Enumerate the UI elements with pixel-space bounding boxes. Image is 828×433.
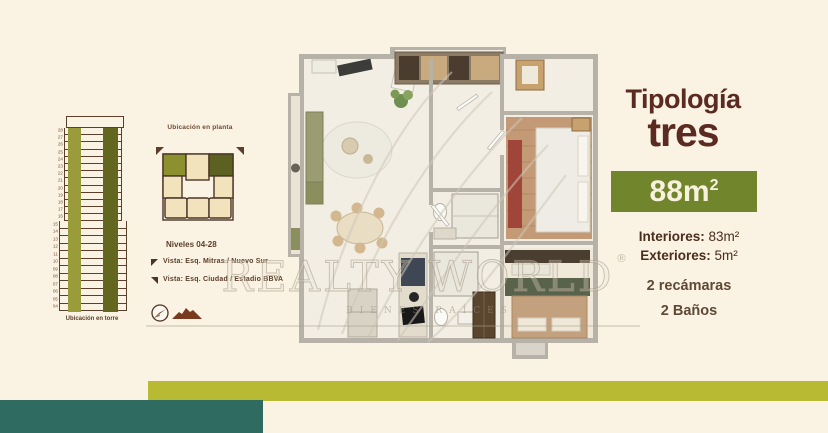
corner-top-left-icon xyxy=(151,259,158,266)
tower-floor-number: 26 xyxy=(54,143,63,148)
tower-diagram: 2827262524232221201918171615141312111009… xyxy=(52,116,132,311)
tower-floor-number: 27 xyxy=(54,136,63,141)
tower-floor-number: 04 xyxy=(49,305,58,310)
tower-floor-number: 09 xyxy=(49,267,58,272)
flyer-page: 2827262524232221201918171615141312111009… xyxy=(0,0,828,433)
tower-roof xyxy=(66,116,124,128)
tower-floor-number: 13 xyxy=(49,237,58,242)
green-accent-wall xyxy=(505,278,590,296)
tower-floor-number: 06 xyxy=(49,290,58,295)
plan-locator-diagram xyxy=(156,146,244,228)
exterior-area-label: Exteriores: xyxy=(640,248,711,263)
bed-2 xyxy=(512,296,587,338)
interior-area-row: Interiores: 83m² xyxy=(597,229,781,244)
exterior-area-value: 5m² xyxy=(715,248,738,263)
accent-bar-teal xyxy=(0,400,263,433)
bedroom-1 xyxy=(506,117,592,239)
view-1-label: Vista: Esq. Mitras / Nuevo Sur xyxy=(163,258,268,265)
tower-floor-number: 17 xyxy=(54,208,63,213)
tower-floor-number: 18 xyxy=(54,201,63,206)
tower-floor-number: 14 xyxy=(49,230,58,235)
locator-unit-highlight-left xyxy=(163,154,186,176)
tower-floors: 2827262524232221201918171615141312111009… xyxy=(52,128,132,311)
tower-floor-number: 22 xyxy=(54,172,63,177)
tower-floor-number: 07 xyxy=(49,282,58,287)
view-corner-marker-right-icon xyxy=(236,147,244,155)
accent-bar-lime xyxy=(148,381,828,401)
exterior-area-row: Exteriores: 5m² xyxy=(597,248,781,263)
kitchen-cabinet xyxy=(401,258,425,286)
area-value: 88m xyxy=(650,175,710,209)
interior-area-label: Interiores: xyxy=(639,229,705,244)
tower-floor-number: 21 xyxy=(54,179,63,184)
locator-unit-highlight-right xyxy=(209,154,233,176)
tower-highlight-stripe-right xyxy=(103,128,118,312)
tower-caption: Ubicación en torre xyxy=(40,316,144,322)
typology-subtitle: tres xyxy=(597,109,769,156)
tower-floor-number: 24 xyxy=(54,158,63,163)
pillow xyxy=(578,136,588,176)
mountain-icon xyxy=(172,306,202,320)
area-superscript: 2 xyxy=(710,177,719,195)
corner-top-right-icon xyxy=(151,277,158,284)
locator-unit-mid-right xyxy=(214,176,233,198)
tower-floor-number: 12 xyxy=(49,245,58,250)
tower-floor-number: 15 xyxy=(49,222,58,227)
tower-floor-number: 19 xyxy=(54,193,63,198)
tower-floor-number: 20 xyxy=(54,186,63,191)
red-accent-wall xyxy=(508,140,522,228)
tower-floor-number: 08 xyxy=(49,275,58,280)
ac-ledge xyxy=(516,343,545,355)
stove xyxy=(401,306,425,325)
compass-icon xyxy=(150,303,170,323)
floorplan-render xyxy=(285,42,605,364)
area-badge: 88m2 xyxy=(611,171,757,212)
plan-locator-title: Ubicación en planta xyxy=(150,124,250,131)
tower-floor-number: 16 xyxy=(54,215,63,220)
locator-unit-mid-left xyxy=(163,176,182,198)
tower-floor-number: 11 xyxy=(49,252,58,257)
tower-highlight-stripe-left xyxy=(68,128,81,312)
bathrooms-count: 2 Baños xyxy=(597,303,781,319)
locator-unit-bottom-mid xyxy=(187,198,209,218)
nightstand xyxy=(572,118,590,131)
locator-unit-bottom-left xyxy=(165,198,187,218)
interior-area-value: 83m² xyxy=(709,229,740,244)
wardrobe-band xyxy=(505,250,590,263)
pillow xyxy=(518,318,546,331)
bedrooms-count: 2 recámaras xyxy=(597,278,781,294)
tower-floor-number: 10 xyxy=(49,260,58,265)
locator-unit-top-mid xyxy=(186,154,209,180)
locator-unit-bottom-right xyxy=(209,198,231,218)
levels-label: Niveles 04-28 xyxy=(166,240,217,249)
tower-floor-number: 25 xyxy=(54,150,63,155)
sink xyxy=(409,292,419,302)
tower-floor-number: 23 xyxy=(54,165,63,170)
tower-floor-number: 05 xyxy=(49,297,58,302)
fridge xyxy=(348,289,377,337)
view-2-label: Vista: Esq. Ciudad / Estadio BBVA xyxy=(163,276,283,283)
tower-floor-number: 28 xyxy=(54,129,63,134)
coffee-table xyxy=(342,138,358,154)
